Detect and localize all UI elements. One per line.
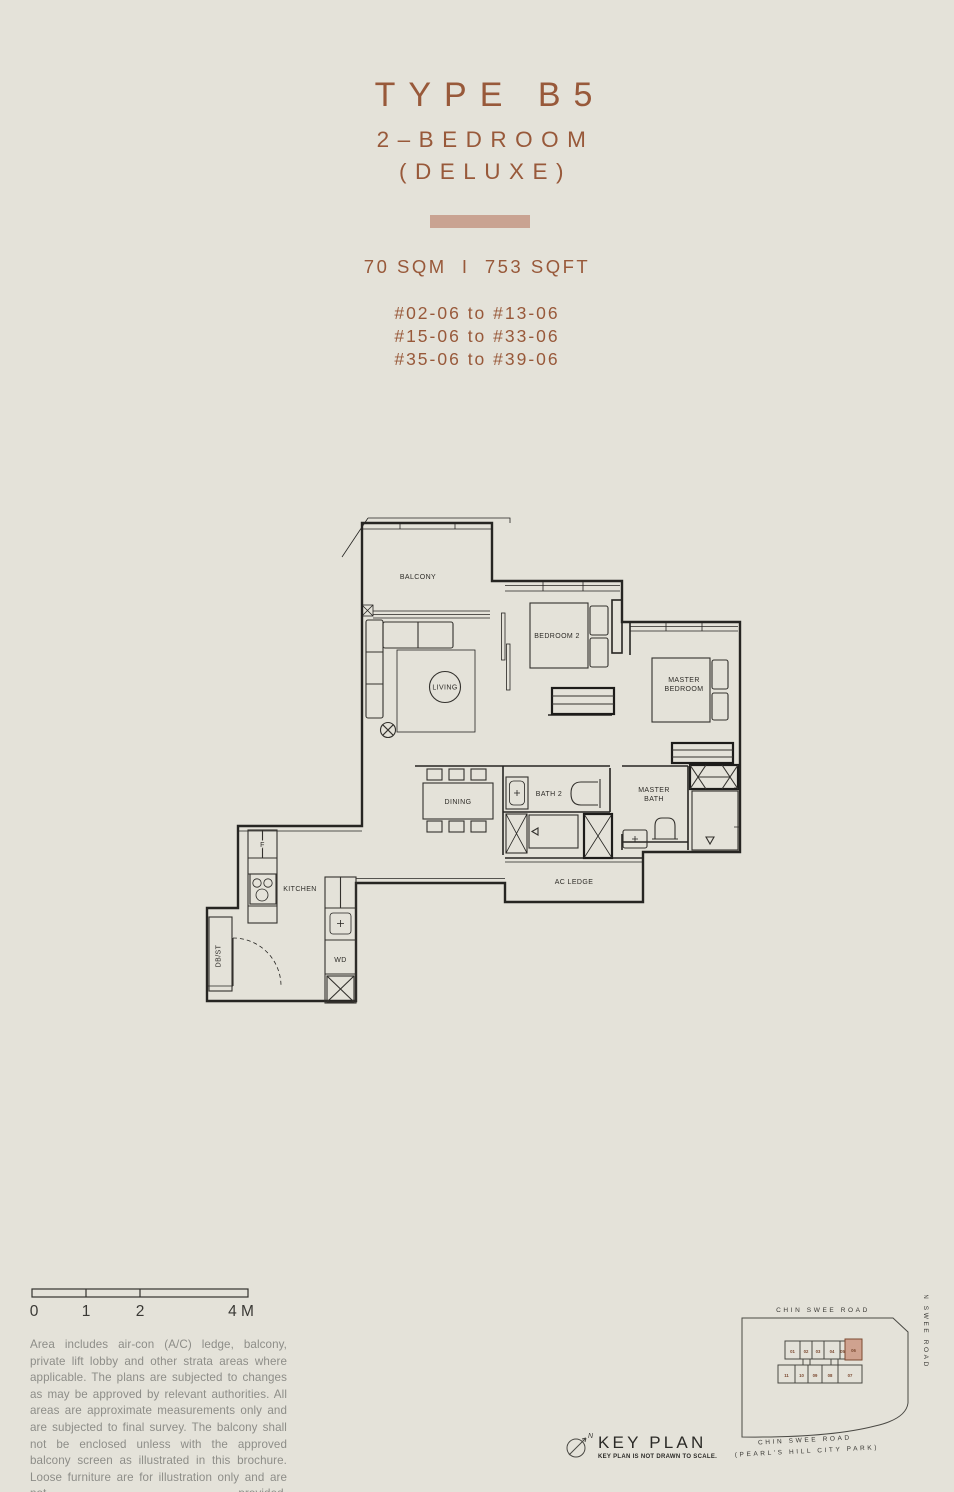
ac-ledge xyxy=(505,858,643,862)
bath2-sink xyxy=(506,777,528,809)
road-label-top: CHIN SWEE ROAD xyxy=(776,1307,870,1314)
label-bedroom2: BEDROOM 2 xyxy=(534,633,580,640)
service-shaft xyxy=(327,976,354,1002)
kitchen-counter-right xyxy=(325,877,356,1003)
svg-text:04: 04 xyxy=(830,1349,835,1354)
key-plan-note: KEY PLAN IS NOT DRAWN TO SCALE. xyxy=(598,1454,717,1460)
scale-tick-0: 0 xyxy=(30,1303,39,1320)
floorplan-interior-walls xyxy=(207,600,688,986)
label-living: LIVING xyxy=(432,685,457,692)
svg-text:11: 11 xyxy=(784,1373,789,1378)
master-bench xyxy=(672,743,733,763)
site-boundary xyxy=(742,1318,908,1437)
svg-text:07: 07 xyxy=(848,1373,853,1378)
svg-text:01: 01 xyxy=(790,1349,795,1354)
unit-range-line: #15-06 to #33-06 xyxy=(0,325,954,348)
svg-text:02: 02 xyxy=(804,1349,809,1354)
svg-text:10: 10 xyxy=(799,1373,804,1378)
label-master-bedroom-1: MASTER xyxy=(668,677,700,684)
svg-text:05: 05 xyxy=(840,1349,845,1354)
stove-icon xyxy=(250,874,276,904)
label-ac-ledge: AC LEDGE xyxy=(555,879,594,886)
master-shower xyxy=(692,791,738,850)
master-wardrobe xyxy=(690,765,738,789)
floor-lamp-icon xyxy=(381,723,396,738)
label-balcony: BALCONY xyxy=(400,574,436,581)
page-title: TYPE B5 xyxy=(0,76,954,115)
kitchen-sink xyxy=(330,913,351,934)
label-master-bedroom-2: BEDROOM xyxy=(665,686,704,693)
sofa xyxy=(366,620,453,718)
hall-closet-left xyxy=(506,814,527,853)
road-label-bottom-1: CHIN SWEE ROAD xyxy=(758,1435,852,1447)
label-fridge: F xyxy=(260,842,265,849)
hall-cabinet-mid xyxy=(529,815,578,848)
label-db-store: DB/ST xyxy=(216,944,223,967)
subtitle-deluxe: (DELUXE) xyxy=(0,159,954,185)
area-size-text: 70 SQM I 753 SQFT xyxy=(0,256,954,278)
disclaimer-text: Area includes air-con (A/C) ledge, balco… xyxy=(30,1337,287,1492)
svg-text:09: 09 xyxy=(813,1373,818,1378)
hall-closet-right xyxy=(584,814,612,858)
unit-range-line: #02-06 to #13-06 xyxy=(0,302,954,325)
label-master-bath-2: BATH xyxy=(644,796,664,803)
entry-door xyxy=(233,938,281,986)
road-label-right: CHIN SWEE ROAD xyxy=(922,1295,929,1369)
svg-text:03: 03 xyxy=(816,1349,821,1354)
label-master-bath-1: MASTER xyxy=(638,787,670,794)
compass-north-label: N xyxy=(588,1433,594,1440)
floor-plan: BALCONY LIVING BEDROOM 2 MASTER BEDROOM … xyxy=(150,505,790,1065)
floorplan-outer-walls xyxy=(207,518,740,1001)
svg-text:08: 08 xyxy=(828,1373,833,1378)
scale-bar: 0 1 2 4 M xyxy=(28,1282,268,1324)
scale-tick-1: 1 xyxy=(82,1303,91,1320)
master-bath-sink xyxy=(623,830,647,848)
bedroom2-dresser xyxy=(552,688,614,714)
scale-tick-2: 2 xyxy=(136,1303,145,1320)
floorplan-windows xyxy=(362,523,739,827)
brochure-page: TYPE B5 2–BEDROOM (DELUXE) 70 SQM I 753 … xyxy=(0,0,954,1492)
road-label-bottom-2: (PEARL'S HILL CITY PARK) xyxy=(735,1444,880,1459)
master-bath-toilet xyxy=(652,818,678,839)
key-plan: N KEY PLAN KEY PLAN IS NOT DRAWN TO SCAL… xyxy=(560,1295,954,1492)
unit-range-line: #35-06 to #39-06 xyxy=(0,348,954,371)
key-plan-title: KEY PLAN xyxy=(598,1433,706,1452)
accent-divider-bar xyxy=(430,215,530,228)
compass-icon xyxy=(567,1438,586,1457)
unit-range-list: #02-06 to #13-06 #15-06 to #33-06 #35-06… xyxy=(0,302,954,371)
label-washer-dryer: WD xyxy=(334,957,346,964)
subtitle-bedroom: 2–BEDROOM xyxy=(0,127,954,153)
svg-text:06: 06 xyxy=(851,1348,856,1353)
scale-tick-4m: 4 M xyxy=(228,1303,254,1320)
bath2-toilet xyxy=(571,779,600,808)
label-dining: DINING xyxy=(445,799,472,806)
label-bath2: BATH 2 xyxy=(536,791,562,798)
label-kitchen: KITCHEN xyxy=(283,886,317,893)
